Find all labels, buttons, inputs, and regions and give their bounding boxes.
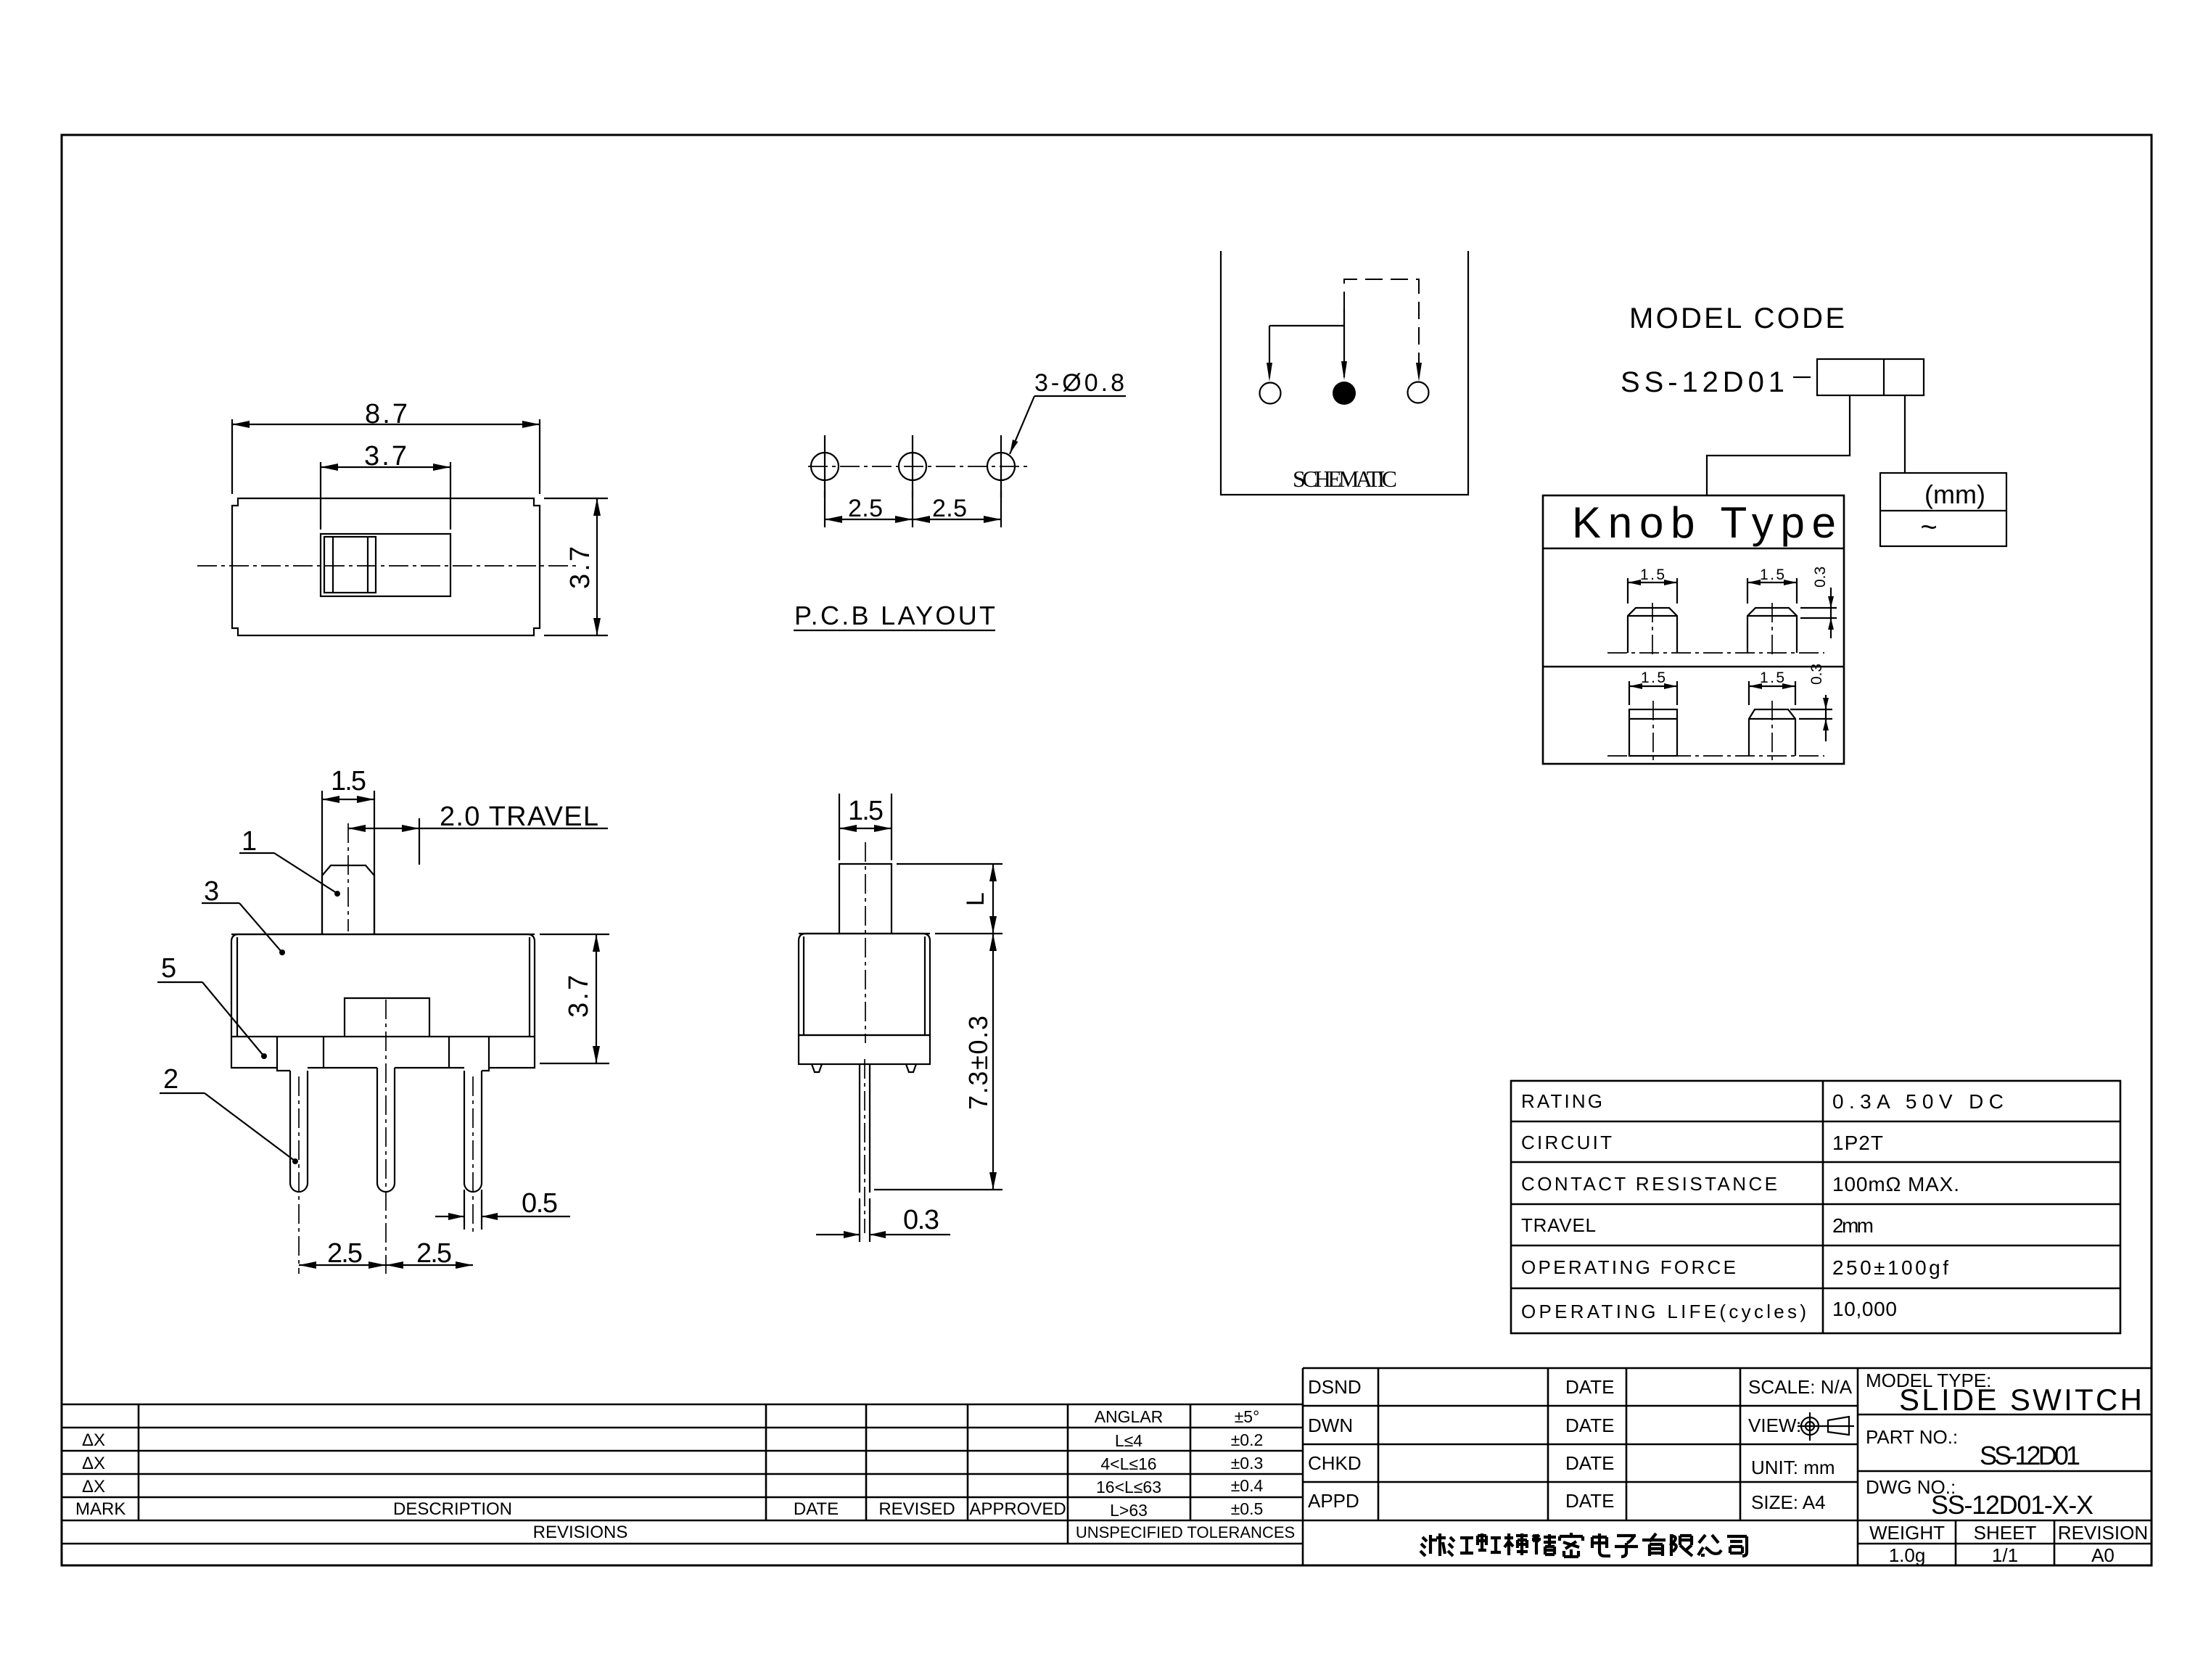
svg-text:2: 2 xyxy=(163,1064,178,1095)
svg-text:0.3: 0.3 xyxy=(1808,664,1825,685)
svg-text:DWN: DWN xyxy=(1308,1415,1353,1436)
svg-text:L>63: L>63 xyxy=(1110,1501,1148,1520)
svg-text:0.5: 0.5 xyxy=(522,1188,558,1219)
svg-text:APPROVED: APPROVED xyxy=(969,1499,1066,1519)
svg-text:±0.3: ±0.3 xyxy=(1231,1454,1264,1473)
svg-text:3.7: 3.7 xyxy=(565,546,596,589)
svg-text:5: 5 xyxy=(161,953,176,984)
svg-text:DATE: DATE xyxy=(1565,1415,1614,1436)
svg-text:SHEET: SHEET xyxy=(1974,1522,2037,1544)
svg-text:250±100gf: 250±100gf xyxy=(1832,1256,1948,1279)
svg-text:1P2T: 1P2T xyxy=(1832,1132,1883,1154)
svg-text:2.5: 2.5 xyxy=(327,1238,363,1269)
svg-text:1.5: 1.5 xyxy=(848,796,884,826)
svg-text:7.3±0.3: 7.3±0.3 xyxy=(963,1016,993,1110)
svg-text:2.0 TRAVEL: 2.0 TRAVEL xyxy=(440,802,598,832)
svg-text:DATE: DATE xyxy=(1565,1490,1614,1512)
svg-text:MARK: MARK xyxy=(75,1499,125,1519)
svg-text:SS-12D01-X-X: SS-12D01-X-X xyxy=(1931,1490,2093,1520)
svg-text:SLIDE SWITCH: SLIDE SWITCH xyxy=(1899,1383,2142,1417)
svg-text:0.3: 0.3 xyxy=(1812,567,1829,588)
svg-text:±0.4: ±0.4 xyxy=(1231,1476,1264,1495)
svg-text:1: 1 xyxy=(242,826,257,857)
svg-text:3.7: 3.7 xyxy=(364,441,407,472)
svg-text:TRAVEL: TRAVEL xyxy=(1521,1214,1596,1236)
svg-text:2mm: 2mm xyxy=(1832,1214,1874,1237)
svg-text:±5°: ±5° xyxy=(1235,1407,1260,1426)
svg-text:DATE: DATE xyxy=(1565,1376,1614,1398)
svg-text:4<L≤16: 4<L≤16 xyxy=(1100,1454,1156,1473)
svg-text:L≤4: L≤4 xyxy=(1115,1431,1142,1450)
svg-text:10,000: 10,000 xyxy=(1832,1298,1897,1320)
svg-text:1.5: 1.5 xyxy=(1641,670,1666,686)
svg-text:DATE: DATE xyxy=(794,1499,839,1519)
svg-text:CHKD: CHKD xyxy=(1308,1452,1362,1474)
svg-text:VIEW:: VIEW: xyxy=(1748,1415,1801,1436)
svg-text:2.5: 2.5 xyxy=(848,495,883,522)
svg-text:DSND: DSND xyxy=(1308,1376,1362,1398)
svg-text:PART NO.:: PART NO.: xyxy=(1866,1426,1958,1448)
svg-text:0.3: 0.3 xyxy=(903,1205,939,1235)
svg-text:ANGLAR: ANGLAR xyxy=(1095,1407,1164,1426)
svg-text:100mΩ MAX.: 100mΩ MAX. xyxy=(1832,1173,1959,1195)
svg-text:UNSPECIFIED TOLERANCES: UNSPECIFIED TOLERANCES xyxy=(1076,1523,1295,1541)
svg-text:1.5: 1.5 xyxy=(1760,567,1784,583)
svg-text:ΔX: ΔX xyxy=(82,1454,105,1473)
svg-text:SCALE: N/A: SCALE: N/A xyxy=(1748,1376,1853,1398)
svg-text:1.5: 1.5 xyxy=(331,766,366,796)
svg-text:ΔX: ΔX xyxy=(82,1477,105,1496)
svg-text:UNIT: mm: UNIT: mm xyxy=(1751,1457,1835,1478)
svg-text:OPERATING FORCE: OPERATING FORCE xyxy=(1521,1256,1736,1278)
svg-text:APPD: APPD xyxy=(1308,1490,1359,1512)
svg-text:3.7: 3.7 xyxy=(564,975,594,1018)
svg-text:SIZE: A4: SIZE: A4 xyxy=(1751,1491,1826,1513)
svg-text:REVISED: REVISED xyxy=(878,1499,955,1519)
svg-text:3: 3 xyxy=(204,876,219,907)
svg-text:8.7: 8.7 xyxy=(365,399,408,429)
svg-text:2.5: 2.5 xyxy=(416,1238,452,1269)
svg-text:A0: A0 xyxy=(2091,1544,2115,1566)
svg-text:(mm): (mm) xyxy=(1924,479,1985,509)
svg-text:16<L≤63: 16<L≤63 xyxy=(1096,1478,1161,1496)
svg-text:P.C.B LAYOUT: P.C.B LAYOUT xyxy=(794,601,995,630)
svg-text:WEIGHT: WEIGHT xyxy=(1869,1522,1945,1544)
svg-text:1/1: 1/1 xyxy=(1992,1544,2018,1566)
svg-text:SCHEMATIC: SCHEMATIC xyxy=(1293,466,1397,492)
svg-text:±0.5: ±0.5 xyxy=(1231,1499,1264,1518)
svg-text:1.5: 1.5 xyxy=(1640,567,1665,583)
svg-text:SS-12D01: SS-12D01 xyxy=(1621,366,1784,398)
svg-text:RATING: RATING xyxy=(1521,1090,1602,1112)
svg-text:2.5: 2.5 xyxy=(932,495,967,522)
svg-text:CONTACT RESISTANCE: CONTACT RESISTANCE xyxy=(1521,1173,1777,1195)
svg-text:~: ~ xyxy=(1920,511,1937,543)
svg-text:ΔX: ΔX xyxy=(82,1430,105,1450)
svg-text:3-Ø0.8: 3-Ø0.8 xyxy=(1034,369,1124,397)
svg-text:DESCRIPTION: DESCRIPTION xyxy=(393,1499,512,1519)
svg-text:REVISIONS: REVISIONS xyxy=(533,1523,628,1542)
svg-text:SS-12D01: SS-12D01 xyxy=(1980,1441,2080,1470)
svg-text:1.0g: 1.0g xyxy=(1889,1544,1926,1566)
svg-text:MODEL CODE: MODEL CODE xyxy=(1629,302,1845,334)
svg-text:Knob Type: Knob Type xyxy=(1572,498,1836,547)
svg-text:±0.2: ±0.2 xyxy=(1231,1430,1264,1449)
svg-text:L: L xyxy=(962,892,989,906)
svg-text:DATE: DATE xyxy=(1565,1452,1614,1474)
svg-text:REVISION: REVISION xyxy=(2058,1522,2148,1544)
svg-text:1.5: 1.5 xyxy=(1760,670,1784,686)
